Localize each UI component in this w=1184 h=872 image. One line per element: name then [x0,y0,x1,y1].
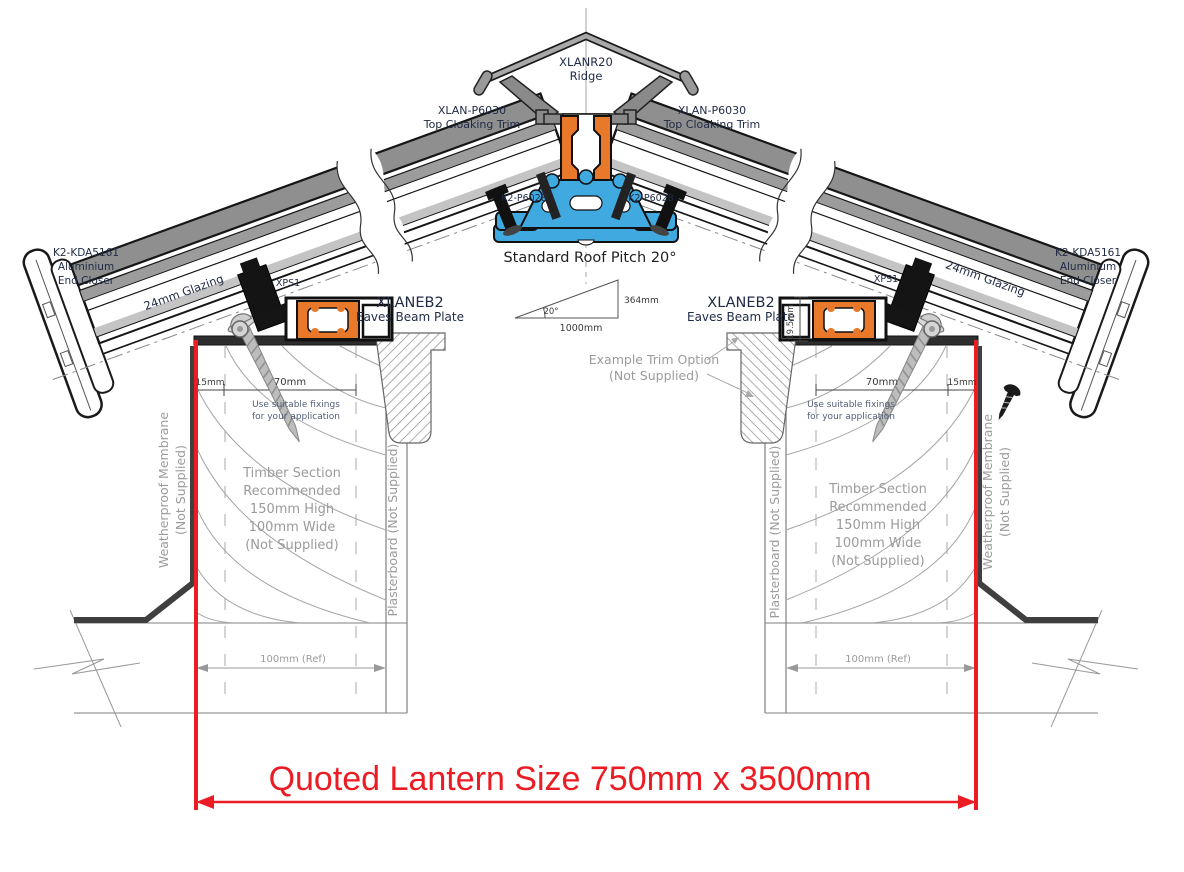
dim-edge-left: 15mm [196,378,225,388]
trim-option-l1: Example Trim Option [589,352,719,367]
membrane-l1-left: Weatherproof Membrane [156,412,171,568]
end-closer-code-left: K2-KDA5161 [53,247,119,259]
fixings-note-l2-left: for your application [252,412,340,422]
plasterboard-label-left: Plasterboard (Not Supplied) [385,444,400,617]
timber-l1-left: Timber Section [242,466,341,481]
membrane-l2-left: (Not Supplied) [173,445,188,535]
kerb-ref-right: 100mm (Ref) [845,654,911,665]
end-closer-l2-right: Aluminium [1060,261,1116,273]
fixings-note-l1-right: Use suitable fixings [807,400,895,410]
timber-l5-right: (Not Supplied) [831,554,925,569]
cloaking-code-label-right: XLAN-P6030 [678,104,746,117]
timber-l4-right: 100mm Wide [835,536,922,551]
fixings-note-l2-right: for your application [807,412,895,422]
pitch-rise-label: 364mm [624,296,659,306]
cloaking-name-label-right: Top Cloaking Trim [663,118,761,131]
ridge-fixing-label-left: K2-P6028 [501,193,547,204]
membrane-l1-right: Weatherproof Membrane [980,414,995,570]
cloaking-name-label-left: Top Cloaking Trim [423,118,521,131]
eaves-name-left: Eaves Beam Plate [356,310,464,324]
cloaking-code-label-left: XLAN-P6030 [438,104,506,117]
trim-option-l2: (Not Supplied) [609,368,699,383]
dim-plate-height: 19.5mm [786,304,796,340]
eaves-code-left: XLANEB2 [376,295,443,311]
quoted-size-title: Quoted Lantern Size 750mm x 3500mm [269,760,872,798]
xps-label-right: XPS1 [874,274,898,285]
plasterboard-label-right: Plasterboard (Not Supplied) [767,446,782,619]
pitch-title: Standard Roof Pitch 20° [503,250,676,266]
timber-l4-left: 100mm Wide [249,520,336,535]
end-closer-l3-right: End Closer [1060,275,1117,287]
ridge-fixing-label-right: K2-P6028 [628,193,674,204]
pitch-run-label: 1000mm [560,323,603,334]
eaves-name-right: Eaves Beam Plate [687,310,795,324]
ridge-code-label: XLANR20 [559,55,613,69]
ridge-name-label: Ridge [570,69,603,83]
fixings-note-l1-left: Use suitable fixings [252,400,340,410]
pitch-triangle [515,280,618,318]
screw-icon [990,382,1022,424]
membrane-l2-right: (Not Supplied) [997,447,1012,537]
roof-lantern-section-diagram: XLANR20 Ridge XLAN-P6030 Top Cloaking Tr… [0,0,1184,872]
end-closer-l2-left: Aluminium [58,261,114,273]
timber-l3-left: 150mm High [250,502,334,517]
dim-fixing-right: 70mm [866,377,898,388]
dim-edge-right: 15mm [948,378,977,388]
kerb-ref-left: 100mm (Ref) [260,654,326,665]
timber-l2-left: Recommended [243,484,341,499]
timber-l5-left: (Not Supplied) [245,538,339,553]
timber-l1-right: Timber Section [828,482,927,497]
timber-l2-right: Recommended [829,500,927,515]
timber-l3-right: 150mm High [836,518,920,533]
end-closer-l3-left: End Closer [58,275,115,287]
eaves-code-right: XLANEB2 [707,295,774,311]
xps-label-left: XPS1 [276,278,300,289]
dim-fixing-left: 70mm [274,377,306,388]
pitch-angle-label: 20° [543,307,558,317]
end-closer-code-right: K2-KDA5161 [1055,247,1121,259]
